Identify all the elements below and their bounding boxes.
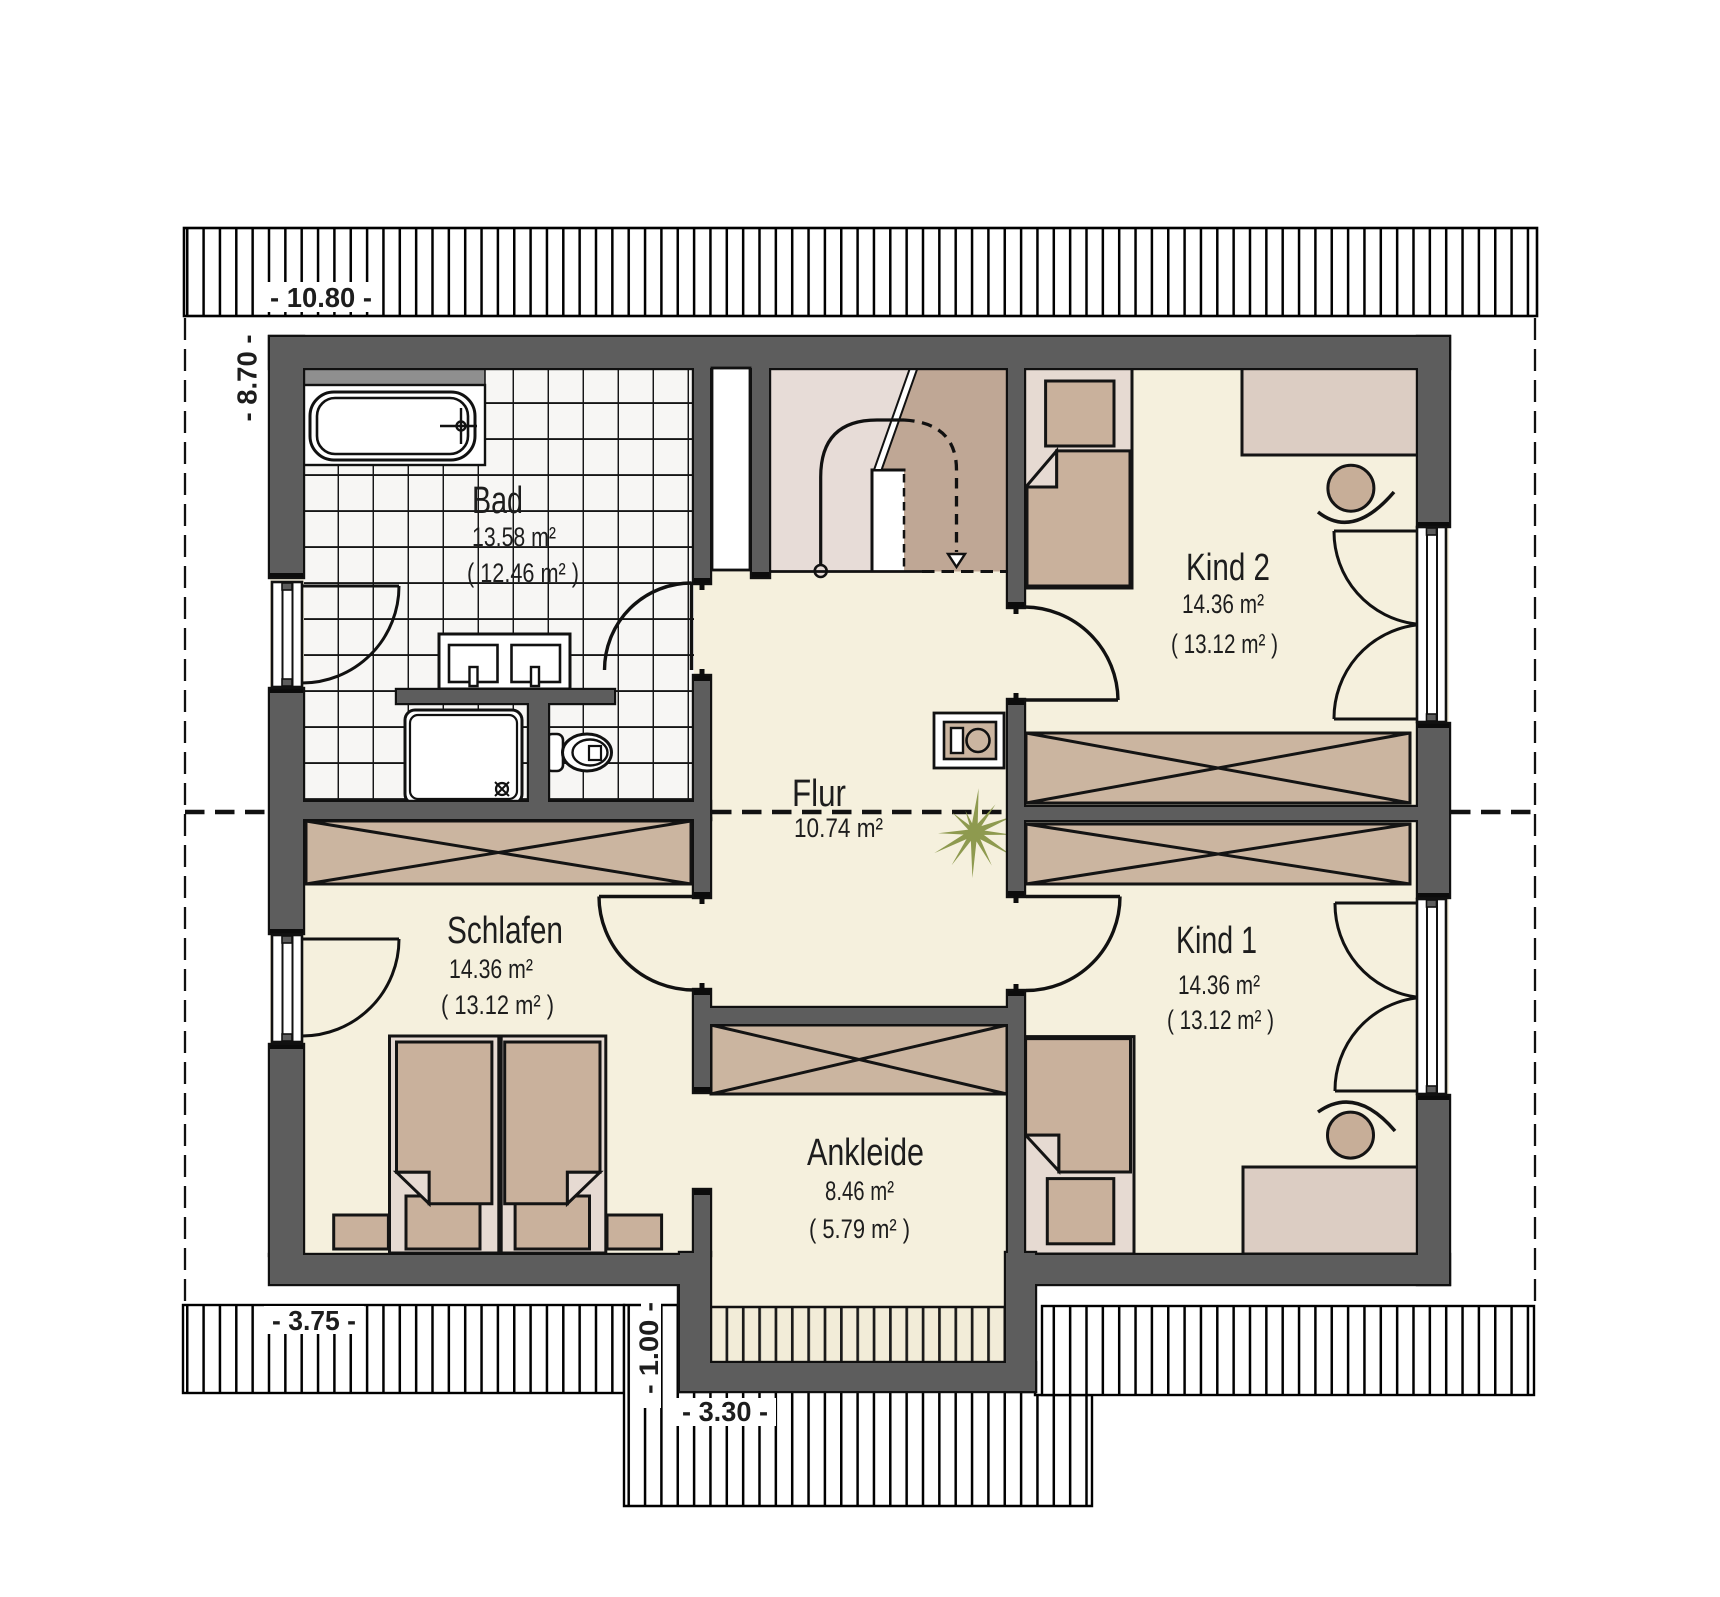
svg-text:Ankleide: Ankleide (807, 1132, 924, 1174)
svg-text:14.36 m²: 14.36 m² (1182, 589, 1264, 619)
svg-text:14.36 m²: 14.36 m² (449, 954, 533, 984)
svg-text:13.58 m²: 13.58 m² (472, 522, 556, 552)
svg-text:8.46 m²: 8.46 m² (825, 1176, 894, 1206)
svg-text:- 8.70 -: - 8.70 - (232, 335, 263, 422)
svg-text:10.74 m²: 10.74 m² (794, 813, 883, 843)
svg-text:( 13.12 m² ): ( 13.12 m² ) (441, 990, 554, 1020)
svg-text:- 10.80 -: - 10.80 - (270, 282, 372, 313)
svg-text:Bad: Bad (472, 480, 523, 522)
svg-text:- 3.30 -: - 3.30 - (682, 1396, 768, 1427)
svg-text:- 3.75 -: - 3.75 - (272, 1305, 356, 1336)
svg-text:- 1.00 -: - 1.00 - (634, 1302, 664, 1394)
svg-text:14.36 m²: 14.36 m² (1178, 970, 1260, 1000)
svg-text:Schlafen: Schlafen (447, 910, 563, 952)
svg-text:Kind 2: Kind 2 (1186, 547, 1270, 589)
svg-text:Kind 1: Kind 1 (1176, 920, 1257, 962)
svg-text:( 13.12 m² ): ( 13.12 m² ) (1167, 1005, 1274, 1035)
svg-text:Flur: Flur (792, 773, 846, 815)
svg-text:( 5.79 m² ): ( 5.79 m² ) (809, 1214, 910, 1244)
svg-text:( 12.46 m² ): ( 12.46 m² ) (467, 558, 579, 588)
svg-text:( 13.12 m² ): ( 13.12 m² ) (1171, 629, 1278, 659)
